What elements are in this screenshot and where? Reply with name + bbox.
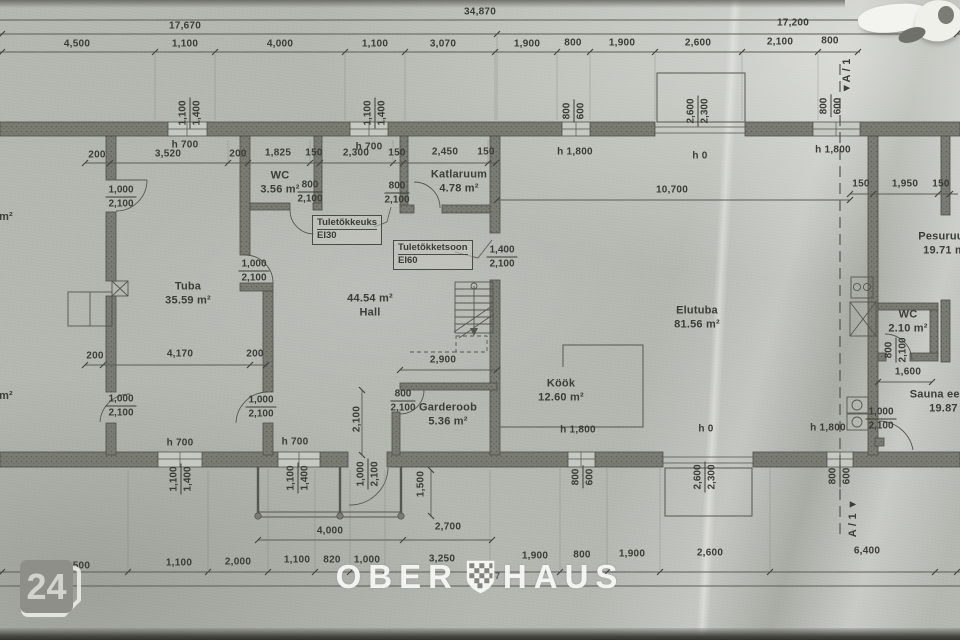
room-label: Elutuba81.56 m² (674, 304, 720, 333)
dim-label: 6,400 (854, 546, 880, 557)
dim-label: 4,500 (64, 39, 90, 50)
dim-label: 2,000 (225, 557, 251, 568)
room-label: Garderoob5.36 m² (419, 401, 477, 430)
dim-label: 150 (852, 179, 869, 190)
door-size-label: 1,0002,100 (245, 395, 276, 420)
fire-rating-label: TuletõkkeuksEI30 (312, 215, 382, 245)
door-size-label: 1,4002,100 (486, 245, 517, 270)
height-label: h 700 (282, 437, 309, 448)
dim-label: 4,000 (267, 39, 293, 50)
dim-label: 200 (246, 349, 263, 360)
room-label: Köök12.60 m² (538, 377, 584, 406)
window-size-label: 800600 (571, 466, 596, 489)
dim-label: 4,170 (167, 349, 193, 360)
dim-label: 10,700 (656, 185, 688, 196)
dim-label-rotated: 1,500 (416, 471, 427, 497)
page-badge-number: 24 (26, 566, 66, 607)
door-size-label: 1,0002,100 (105, 394, 136, 419)
door-size-label: 1,0002,100 (238, 259, 269, 284)
height-label: h 0 (692, 151, 707, 162)
height-label: h 1,800 (557, 147, 593, 158)
staircase (410, 282, 494, 352)
window-size-label: 2,6002,300 (693, 461, 718, 492)
room-label: Tuba35.59 m² (165, 280, 211, 309)
dim-label: 200 (229, 149, 246, 160)
height-label: h 700 (172, 140, 199, 151)
dim-label-rotated: 2,100 (352, 406, 363, 432)
dim-label: 3,070 (430, 39, 456, 50)
room-label: WC3.56 m² (260, 169, 299, 198)
dim-label: 1,825 (265, 148, 291, 159)
door-size-label: 1,0002,100 (105, 185, 136, 210)
section-marker: A / 1 ▼ (847, 499, 859, 538)
dim-label: 200 (88, 150, 105, 161)
photo-bottom-edge-shadow (0, 628, 960, 640)
porch-railing (255, 467, 404, 519)
window-size-label: 800600 (828, 465, 853, 488)
terrace-outlines (657, 73, 752, 516)
oberhaus-shield-logo (466, 559, 496, 595)
room-label: Pesuruum19.71 m² (918, 230, 960, 259)
torn-paper-shadow (938, 6, 954, 24)
height-label: h 700 (356, 142, 383, 153)
dim-label: 2,100 (767, 37, 793, 48)
window-size-label: 800600 (562, 100, 587, 123)
window-size-label: 1,1001,400 (178, 97, 203, 128)
room-label: 44.54 m²Hall (347, 292, 393, 321)
window-size-label: 1,1001,400 (169, 463, 194, 494)
dim-label: 1,600 (895, 367, 921, 378)
floor-plan-drawing (0, 0, 960, 640)
dim-label: 2,700 (435, 522, 461, 533)
room-label: Katlaruum4.78 m² (431, 168, 487, 197)
dim-label: 1,900 (514, 39, 540, 50)
door-size-label: 8002,100 (297, 180, 322, 205)
height-label: h 1,800 (815, 145, 851, 156)
dim-label: 2,450 (432, 147, 458, 158)
height-label: h 1,800 (810, 423, 846, 434)
dim-label: 150 (477, 147, 494, 158)
room-label: m² (0, 389, 13, 403)
section-marker: ▼A / 1 (841, 58, 853, 93)
window-size-label: 1,0002,100 (356, 458, 381, 489)
watermark-text-left: OBER (336, 558, 459, 596)
photo-top-edge-shadow (0, 0, 845, 8)
door-size-label: 1,0002,100 (865, 407, 896, 432)
window-size-label: 1,1001,400 (363, 97, 388, 128)
dim-label: 17,200 (777, 18, 809, 29)
door-size-label: 8002,100 (390, 389, 415, 414)
dim-label: 1,100 (362, 39, 388, 50)
dim-label: 1,950 (892, 179, 918, 190)
fire-rating-label: TuletõkketsoonEI60 (393, 240, 473, 270)
height-label: h 700 (167, 438, 194, 449)
dim-label: 200 (86, 351, 103, 362)
height-label: h 0 (698, 424, 713, 435)
dim-label: 150 (388, 148, 405, 159)
watermark-text-right: HAUS (503, 558, 625, 596)
room-label: WC2.10 m² (888, 308, 927, 337)
oberhaus-watermark: OBER HAUS (336, 558, 625, 596)
dim-label: 800 (564, 38, 581, 49)
room-label: Sauna eesruum19.87 m² (910, 388, 960, 417)
dim-label: 800 (821, 36, 838, 47)
window-size-label: 8002,100 (884, 337, 909, 362)
dim-label: 1,100 (284, 555, 310, 566)
dim-label: 1,100 (172, 39, 198, 50)
dim-label: 34,870 (464, 7, 496, 18)
floor-plan-photo: 34,87017,67017,2004,5001,1004,0001,1003,… (0, 0, 960, 640)
dim-label: 150 (932, 179, 949, 190)
window-size-label: 2,6002,300 (686, 95, 711, 126)
dim-label: 1,900 (609, 38, 635, 49)
dim-label: 1,100 (166, 558, 192, 569)
dim-label: 150 (305, 148, 322, 159)
dim-label: 17,670 (169, 21, 201, 32)
window-size-label: 800600 (819, 95, 844, 118)
window-size-label: 1,1001,400 (286, 462, 311, 493)
page-badge: 24 (12, 554, 90, 630)
height-label: h 1,800 (560, 425, 596, 436)
door-size-label: 8002,100 (384, 181, 409, 206)
dim-label: 2,900 (430, 355, 456, 366)
room-label: m² (0, 210, 13, 224)
dim-label: 4,000 (317, 526, 343, 537)
dim-label: 2,600 (685, 38, 711, 49)
dim-label: 2,600 (697, 548, 723, 559)
